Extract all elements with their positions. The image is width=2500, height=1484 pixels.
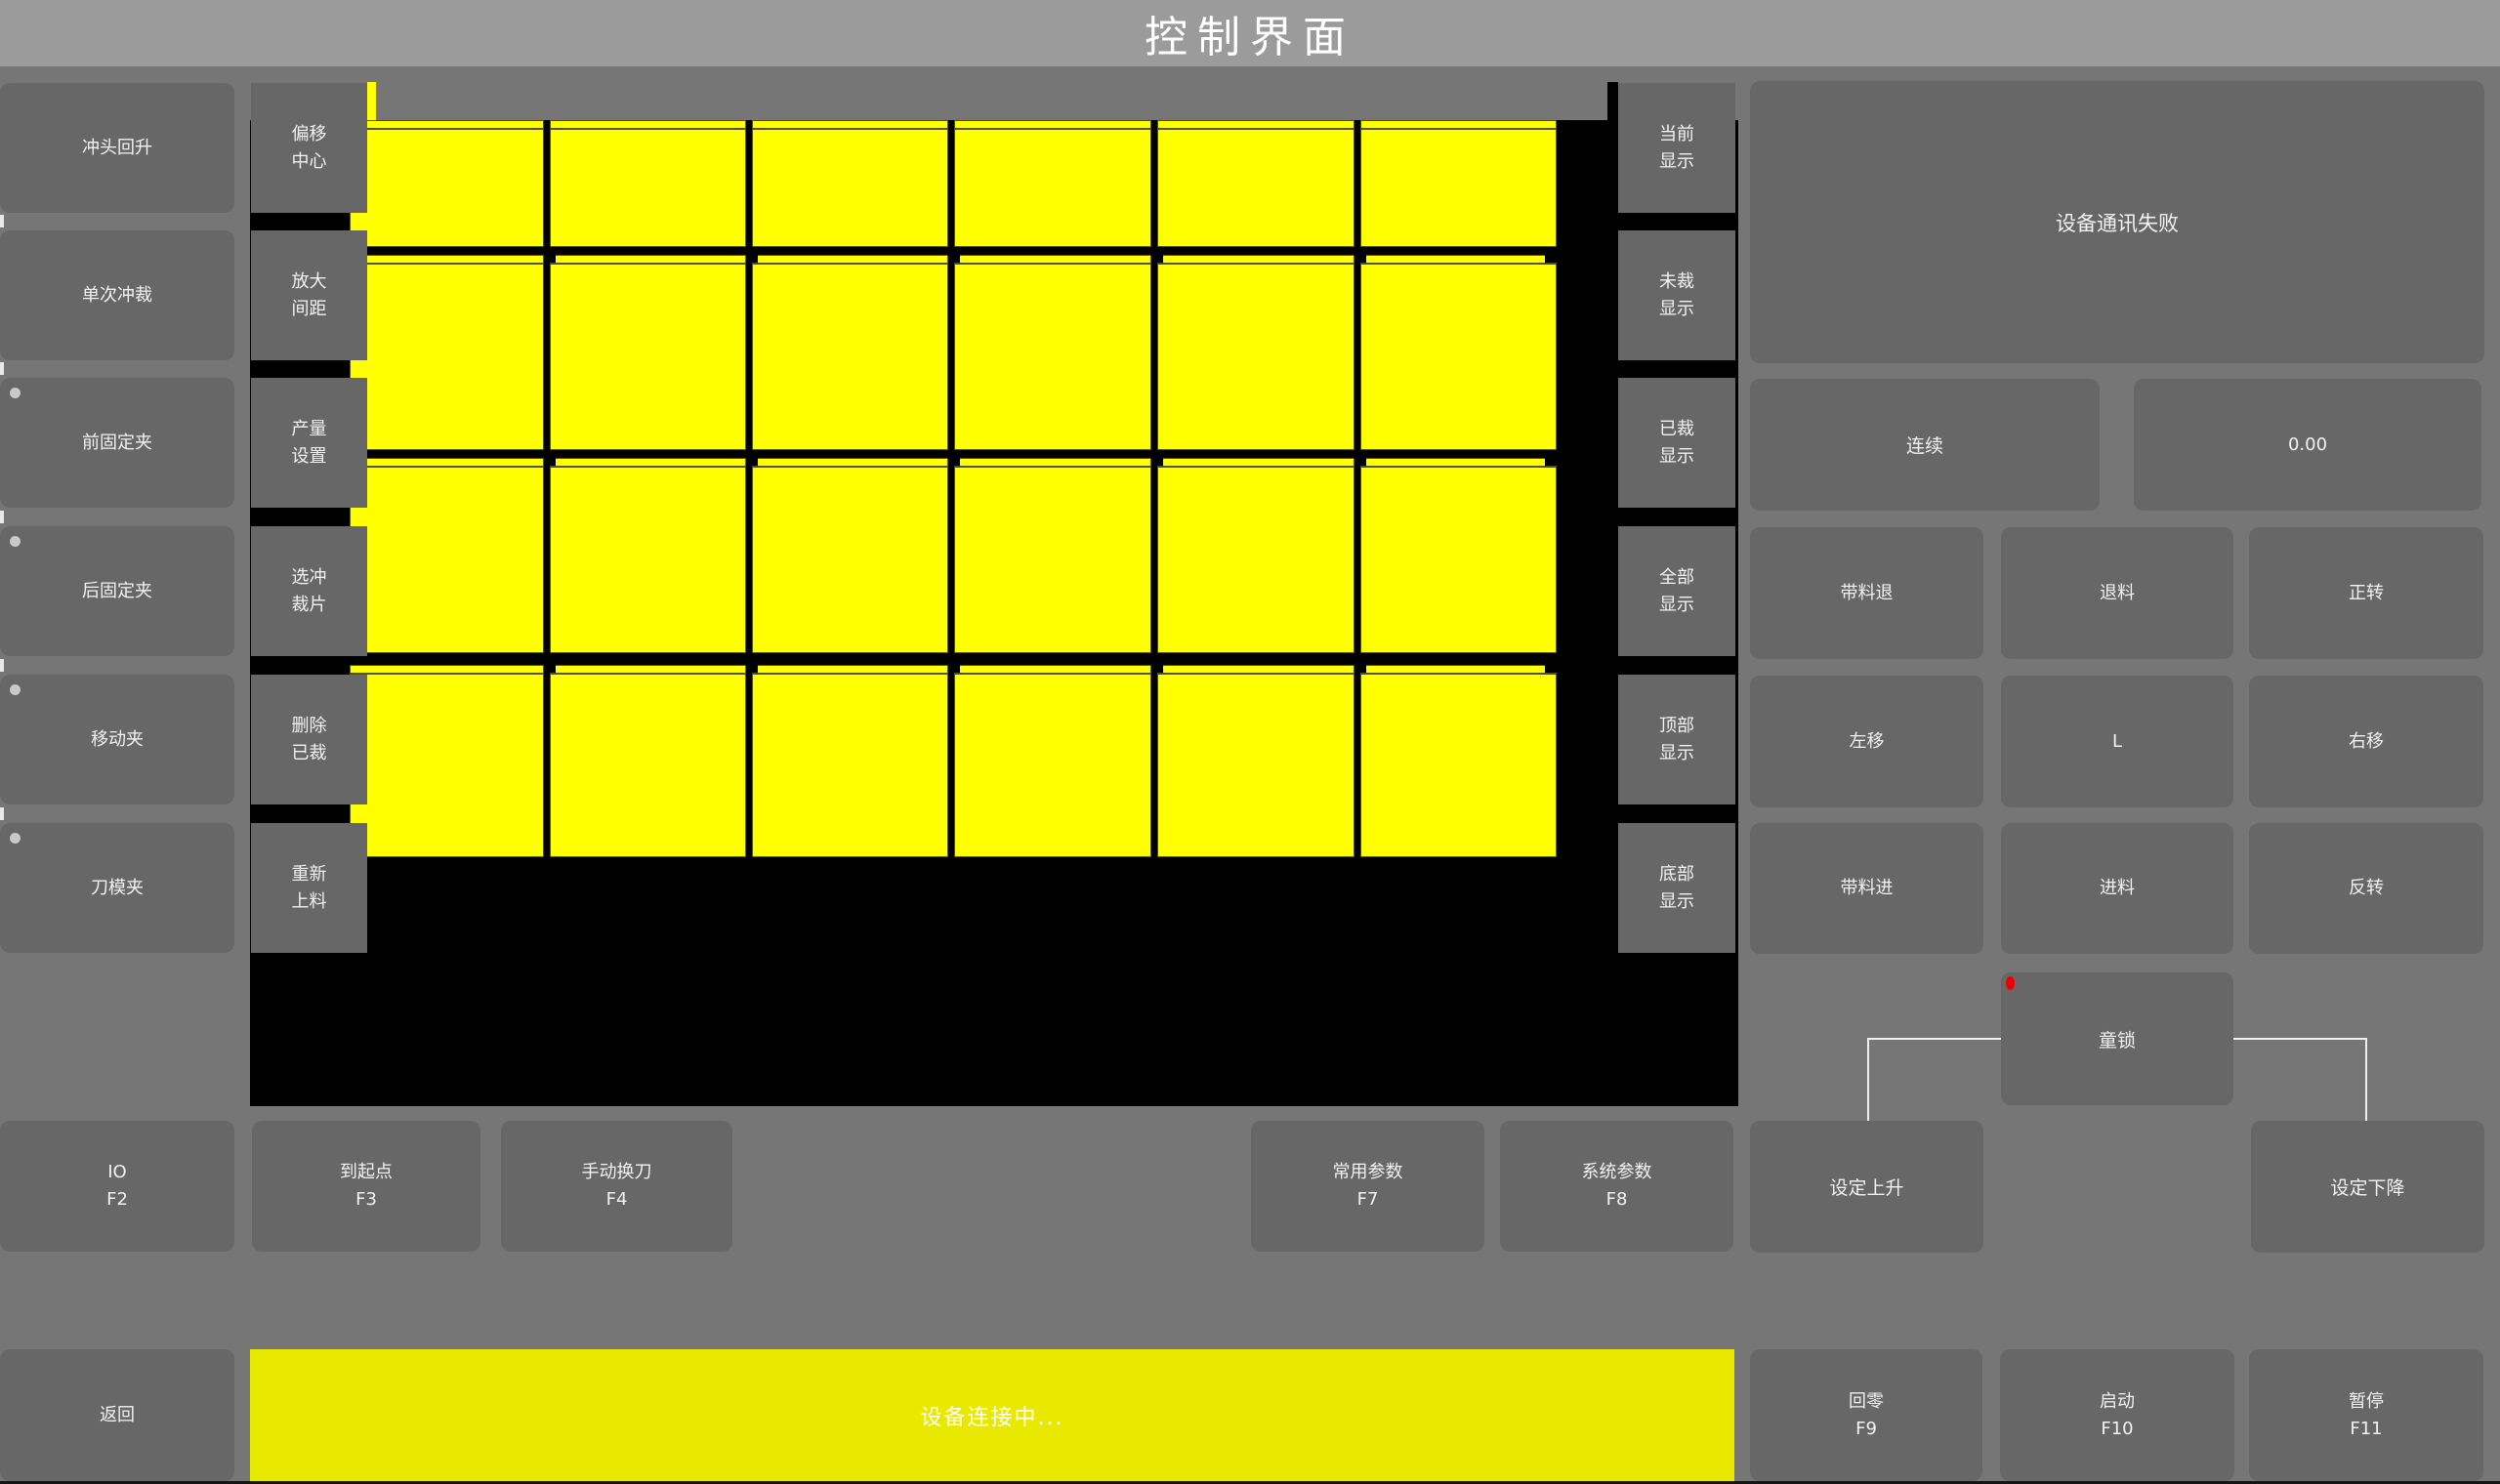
fkey-button-F2[interactable]: IOF2	[0, 1121, 234, 1252]
status-indicator-dot	[10, 388, 21, 398]
mode-button[interactable]: 连续	[1750, 379, 2100, 511]
cut-piece-r4-c6[interactable]	[1360, 665, 1557, 857]
comm-status-text: 设备通讯失败	[2056, 208, 2179, 237]
piece-registration-notch	[746, 450, 758, 466]
bottom-key-label: 回零	[1849, 1388, 1884, 1416]
jog-button-label: 退料	[2100, 580, 2135, 607]
set-raise-button[interactable]: 设定上升	[1750, 1121, 1983, 1253]
left-button-label: 冲头回升	[82, 135, 152, 162]
display-button-当前显示[interactable]: 当前显示	[1618, 83, 1735, 213]
display-button-未裁显示[interactable]: 未裁显示	[1618, 230, 1735, 360]
edge-mark	[0, 659, 4, 672]
display-button-全部显示[interactable]: 全部显示	[1618, 526, 1735, 656]
cut-piece-r1-c5[interactable]	[1157, 120, 1354, 247]
cut-piece-r4-c3[interactable]	[752, 665, 948, 857]
cut-piece-r2-c4[interactable]	[954, 255, 1151, 450]
fkey-label: IO	[107, 1159, 126, 1186]
edge-mark	[0, 215, 4, 227]
jog-button-label: 反转	[2349, 875, 2384, 902]
piece-registration-notch	[1545, 247, 1557, 263]
bottom-key-button-F10[interactable]: 启动F10	[2000, 1349, 2234, 1481]
piece-registration-notch	[544, 657, 556, 673]
bracket-line-right-v	[2365, 1038, 2367, 1121]
bottom-key-code: F9	[1855, 1416, 1877, 1443]
display-button-line1: 顶部	[1659, 713, 1694, 740]
cut-piece-r3-c3[interactable]	[752, 458, 948, 653]
jog-button-label: 进料	[2100, 875, 2135, 902]
tool-button-放大间距[interactable]: 放大间距	[251, 230, 367, 360]
tool-button-line2: 中心	[292, 148, 327, 176]
piece-registration-notch	[1545, 450, 1557, 466]
display-button-line2: 显示	[1659, 740, 1694, 767]
fkey-button-F3[interactable]: 到起点F3	[252, 1121, 480, 1252]
piece-registration-notch	[746, 247, 758, 263]
fkey-button-F7[interactable]: 常用参数F7	[1251, 1121, 1484, 1252]
cut-piece-r3-c6[interactable]	[1360, 458, 1557, 653]
cut-piece-r2-c5[interactable]	[1157, 255, 1354, 450]
mode-button-label: 连续	[1906, 432, 1943, 458]
left-button-冲头回升[interactable]: 冲头回升	[0, 83, 234, 213]
jog-button-label: 带料进	[1841, 875, 1894, 902]
cut-piece-r2-c6[interactable]	[1360, 255, 1557, 450]
cut-piece-r3-c2[interactable]	[550, 458, 746, 653]
piece-registration-notch	[1354, 657, 1366, 673]
display-button-line2: 显示	[1659, 888, 1694, 916]
fkey-button-F4[interactable]: 手动换刀F4	[501, 1121, 732, 1252]
display-button-line2: 显示	[1659, 148, 1694, 176]
bracket-line-left-v	[1867, 1038, 1869, 1121]
left-button-前固定夹[interactable]: 前固定夹	[0, 378, 234, 508]
left-button-label: 移动夹	[91, 726, 144, 754]
display-button-底部显示[interactable]: 底部显示	[1618, 823, 1735, 953]
tool-button-line1: 产量	[292, 416, 327, 443]
tool-button-产量设置[interactable]: 产量设置	[251, 378, 367, 508]
piece-registration-notch	[544, 247, 556, 263]
display-button-顶部显示[interactable]: 顶部显示	[1618, 675, 1735, 804]
display-button-line2: 显示	[1659, 592, 1694, 619]
tool-button-line1: 删除	[292, 713, 327, 740]
set-lower-label: 设定下降	[2330, 1174, 2404, 1200]
bottom-key-label: 启动	[2100, 1388, 2135, 1416]
jog-button-进料[interactable]: 进料	[2001, 823, 2233, 954]
left-button-移动夹[interactable]: 移动夹	[0, 675, 234, 804]
edge-mark	[0, 807, 4, 820]
left-button-label: 前固定夹	[82, 430, 152, 457]
piece-registration-notch	[1151, 247, 1163, 263]
display-button-line2: 显示	[1659, 443, 1694, 471]
status-indicator-dot	[10, 536, 21, 547]
jog-button-反转[interactable]: 反转	[2249, 823, 2483, 954]
child-lock-indicator-dot	[2006, 976, 2015, 990]
jog-button-L[interactable]: L	[2001, 676, 2233, 807]
fkey-code: F8	[1606, 1186, 1628, 1214]
cut-piece-r1-c4[interactable]	[954, 120, 1151, 247]
piece-registration-notch	[746, 657, 758, 673]
left-button-label: 刀模夹	[91, 875, 144, 902]
cut-piece-r1-c6[interactable]	[1360, 120, 1557, 247]
piece-registration-notch	[1354, 450, 1366, 466]
fkey-code: F4	[606, 1186, 628, 1214]
edge-mark	[0, 511, 4, 523]
set-lower-button[interactable]: 设定下降	[2251, 1121, 2484, 1253]
bracket-line-right-h	[2233, 1038, 2367, 1040]
piece-registration-notch	[948, 247, 960, 263]
tool-button-重新上料[interactable]: 重新上料	[251, 823, 367, 953]
fkey-code: F7	[1357, 1186, 1379, 1214]
value-display-text: 0.00	[2288, 434, 2327, 455]
tool-button-line2: 间距	[292, 296, 327, 323]
fkey-label: 到起点	[340, 1159, 393, 1186]
piece-registration-notch	[948, 450, 960, 466]
back-button[interactable]: 返回	[0, 1349, 234, 1481]
display-button-line1: 未裁	[1659, 268, 1694, 296]
jog-button-label: 正转	[2349, 580, 2384, 607]
left-button-label: 后固定夹	[82, 578, 152, 605]
cut-piece-r4-c5[interactable]	[1157, 665, 1354, 857]
tool-button-line1: 选冲	[292, 564, 327, 592]
left-button-刀模夹[interactable]: 刀模夹	[0, 823, 234, 953]
piece-registration-notch	[1151, 450, 1163, 466]
cut-piece-r3-c4[interactable]	[954, 458, 1151, 653]
fkey-button-F8[interactable]: 系统参数F8	[1500, 1121, 1733, 1252]
piece-registration-notch	[1151, 657, 1163, 673]
tool-button-line2: 设置	[292, 443, 327, 471]
connection-status-text: 设备连接中...	[921, 1400, 1064, 1431]
fkey-label: 手动换刀	[582, 1159, 652, 1186]
display-button-line1: 全部	[1659, 564, 1694, 592]
piece-registration-notch	[1545, 657, 1557, 673]
cut-piece-r1-c1[interactable]	[350, 120, 544, 247]
cut-piece-r4-c2[interactable]	[550, 665, 746, 857]
jog-button-带料退[interactable]: 带料退	[1750, 527, 1983, 659]
tool-button-选冲裁片[interactable]: 选冲裁片	[251, 526, 367, 656]
cut-piece-r4-c4[interactable]	[954, 665, 1151, 857]
status-indicator-dot	[10, 684, 21, 695]
jog-button-左移[interactable]: 左移	[1750, 676, 1983, 807]
bottom-key-code: F11	[2350, 1416, 2382, 1443]
tool-button-line2: 裁片	[292, 592, 327, 619]
child-lock-label: 童锁	[2099, 1026, 2136, 1052]
display-button-line1: 已裁	[1659, 416, 1694, 443]
back-button-label: 返回	[100, 1402, 135, 1429]
jog-button-带料进[interactable]: 带料进	[1750, 823, 1983, 954]
piece-registration-notch	[544, 450, 556, 466]
child-lock-button[interactable]: 童锁	[2001, 972, 2233, 1105]
cut-piece-r2-c3[interactable]	[752, 255, 948, 450]
jog-button-label: L	[2112, 728, 2122, 756]
bottom-key-button-F9[interactable]: 回零F9	[1750, 1349, 1982, 1481]
bottom-key-code: F10	[2101, 1416, 2133, 1443]
jog-button-正转[interactable]: 正转	[2249, 527, 2483, 659]
jog-button-label: 右移	[2349, 728, 2384, 756]
tool-button-line2: 已裁	[292, 740, 327, 767]
piece-registration-notch	[948, 657, 960, 673]
jog-button-label: 带料退	[1841, 580, 1894, 607]
display-button-line1: 当前	[1659, 121, 1694, 148]
cut-piece-r1-c3[interactable]	[752, 120, 948, 247]
display-button-line1: 底部	[1659, 861, 1694, 888]
connection-status-bar: 设备连接中...	[250, 1349, 1734, 1481]
value-display-field[interactable]: 0.00	[2134, 379, 2481, 511]
fkey-label: 常用参数	[1333, 1159, 1403, 1186]
tool-button-line1: 放大	[292, 268, 327, 296]
cut-piece-r3-c5[interactable]	[1157, 458, 1354, 653]
cut-piece-r1-c2[interactable]	[550, 120, 746, 247]
piece-registration-notch	[1354, 247, 1366, 263]
bottom-key-label: 暂停	[2349, 1388, 2384, 1416]
display-button-line2: 显示	[1659, 296, 1694, 323]
tool-button-偏移中心[interactable]: 偏移中心	[251, 83, 367, 213]
left-button-单次冲裁[interactable]: 单次冲裁	[0, 230, 234, 360]
jog-button-label: 左移	[1850, 728, 1885, 756]
cut-piece-r2-c1[interactable]	[350, 255, 544, 450]
display-button-已裁显示[interactable]: 已裁显示	[1618, 378, 1735, 508]
fkey-label: 系统参数	[1582, 1159, 1652, 1186]
jog-button-右移[interactable]: 右移	[2249, 676, 2483, 807]
tool-button-line2: 上料	[292, 888, 327, 916]
jog-button-退料[interactable]: 退料	[2001, 527, 2233, 659]
fkey-code: F2	[106, 1186, 128, 1214]
tool-button-line1: 偏移	[292, 121, 327, 148]
edge-mark	[0, 362, 4, 375]
left-button-label: 单次冲裁	[82, 282, 152, 309]
comm-status-box: 设备通讯失败	[1750, 81, 2484, 363]
cut-piece-r3-c1[interactable]	[350, 458, 544, 653]
bottom-key-button-F11[interactable]: 暂停F11	[2249, 1349, 2483, 1481]
cut-piece-r2-c2[interactable]	[550, 255, 746, 450]
fkey-code: F3	[355, 1186, 377, 1214]
status-indicator-dot	[10, 833, 21, 844]
set-raise-label: 设定上升	[1829, 1174, 1903, 1200]
tool-button-line1: 重新	[292, 861, 327, 888]
left-button-后固定夹[interactable]: 后固定夹	[0, 526, 234, 656]
cut-piece-r4-c1[interactable]	[350, 665, 544, 857]
tool-button-删除已裁[interactable]: 删除已裁	[251, 675, 367, 804]
bracket-line-left-h	[1867, 1038, 2001, 1040]
